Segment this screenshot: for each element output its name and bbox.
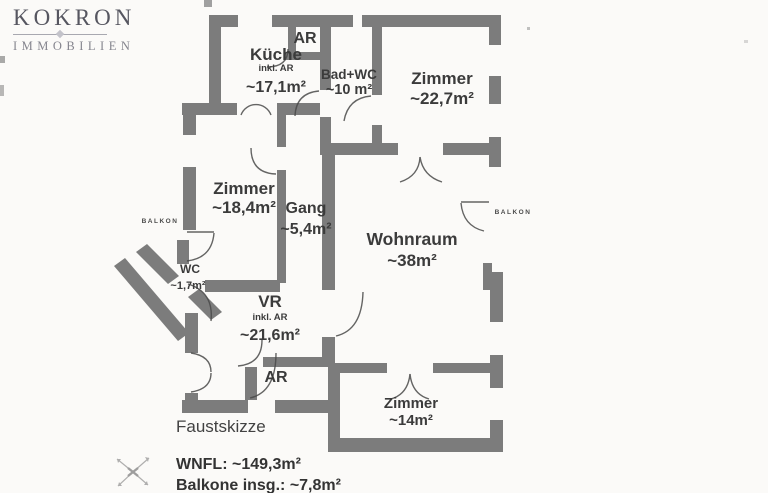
room-area-wohnraum: ~38m²: [362, 252, 462, 270]
room-note-kueche: inkl. AR: [228, 64, 324, 74]
room-area-wc: ~1,7m²: [162, 281, 214, 293]
room-area-zimmer-w: ~18,4m²: [202, 199, 286, 217]
area-summary: WNFL: ~149,3m² Balkone insg.: ~7,8m²: [176, 456, 341, 493]
balcony-total-label: Balkone insg.:: [176, 477, 285, 493]
room-label-zimmer-w: Zimmer: [202, 180, 286, 198]
room-label-ar-bottom: AR: [248, 370, 304, 387]
room-label-ar-top: AR: [288, 31, 322, 48]
compass-icon: [117, 457, 149, 486]
room-area-gang: ~5,4m²: [272, 222, 340, 239]
room-note-vr: inkl. AR: [240, 313, 300, 323]
scanned-floorplan-page: KOKRON IMMOBILIEN: [0, 0, 768, 493]
wnfl-value: ~149,3m²: [232, 456, 301, 473]
room-area-bad-wc: ~10 m²: [318, 83, 380, 98]
room-label-bad-wc: Bad+WC: [318, 68, 380, 82]
balcony-total: Balkone insg.: ~7,8m²: [176, 477, 341, 493]
sketch-caption: Faustskizze: [176, 417, 336, 437]
balcony-total-value: ~7,8m²: [290, 477, 341, 493]
balcony-label-east: BALKON: [490, 210, 536, 217]
room-area-zimmer-s: ~14m²: [378, 413, 444, 429]
room-label-wc: WC: [168, 263, 212, 276]
room-area-kueche: ~17,1m²: [228, 80, 324, 97]
room-label-vr: VR: [240, 293, 300, 311]
wnfl-label: WNFL:: [176, 456, 228, 473]
room-label-kueche: Küche: [228, 46, 324, 64]
room-area-vr: ~21,6m²: [234, 328, 306, 345]
room-label-gang: Gang: [278, 201, 334, 218]
balcony-label-west: BALKON: [138, 219, 182, 226]
room-label-zimmer-s: Zimmer: [378, 396, 444, 412]
wnfl-total: WNFL: ~149,3m²: [176, 456, 341, 474]
room-area-zimmer-ne: ~22,7m²: [402, 90, 482, 108]
room-label-wohnraum: Wohnraum: [362, 230, 462, 248]
room-label-zimmer-ne: Zimmer: [402, 70, 482, 88]
